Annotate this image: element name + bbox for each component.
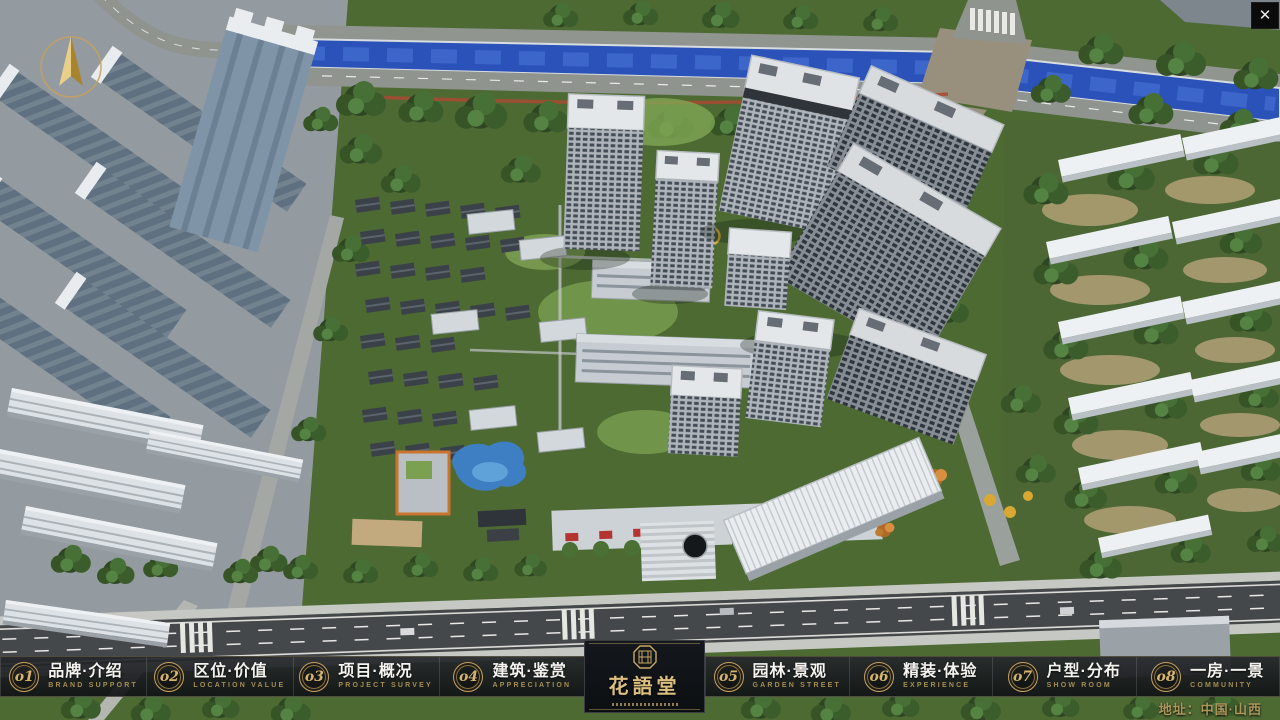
address-text: 地址：中国·山西	[1159, 699, 1262, 718]
menu-number-badge-3: o3	[299, 662, 329, 692]
menu-item-floorplan-distribution[interactable]: o7 户型·分布SHOW ROOM	[992, 657, 1136, 696]
menu-label: 品牌·介绍	[48, 664, 138, 681]
logo-panel[interactable]: 花語堂	[584, 640, 705, 713]
menu-number-badge-7: o7	[1008, 662, 1038, 692]
menu-sublabel: EXPERIENCE	[903, 682, 977, 689]
logo-title: 花語堂	[609, 670, 681, 699]
menu-label: 精装·体验	[903, 664, 977, 681]
tan-building	[352, 519, 423, 547]
menu-item-room-view[interactable]: o8 一房·一景COMMUNITY	[1136, 657, 1280, 696]
close-button[interactable]: ✕	[1251, 2, 1279, 29]
menu-item-project-overview[interactable]: o3 项目·概况PROJECT SURVEY	[293, 657, 439, 696]
menu-group-left: o1 品牌·介绍BRAND SUPPORT o2 区位·价值LOCATION V…	[0, 657, 585, 696]
menu-item-interior-experience[interactable]: o6 精装·体验EXPERIENCE	[849, 657, 993, 696]
entrance-plaza	[640, 521, 716, 582]
menu-number-badge-1: o1	[9, 662, 39, 692]
menu-number-badge-5: o5	[714, 662, 744, 692]
menu-sublabel: GARDEN STREET	[753, 682, 842, 689]
menu-group-right: o5 园林·景观GARDEN STREET o6 精装·体验EXPERIENCE…	[705, 657, 1280, 696]
menu-sublabel: APPRECIATION	[492, 682, 571, 689]
menu-label: 项目·概况	[338, 664, 432, 681]
menu-item-architecture[interactable]: o4 建筑·鉴赏APPRECIATION	[439, 657, 585, 696]
menu-sublabel: BRAND SUPPORT	[48, 682, 138, 689]
menu-sublabel: COMMUNITY	[1190, 682, 1264, 689]
menu-number-badge-8: o8	[1151, 662, 1181, 692]
menu-label: 区位·价值	[193, 664, 285, 681]
presentation-stage: ✕ o1 品牌·介绍BRAND SUPPORT o2 区位·价值LOCATION…	[0, 0, 1280, 720]
menu-label: 户型·分布	[1047, 664, 1121, 681]
menu-item-location-value[interactable]: o2 区位·价值LOCATION VALUE	[146, 657, 292, 696]
menu-number-badge-4: o4	[453, 662, 483, 692]
menu-number-badge-2: o2	[154, 662, 184, 692]
menu-sublabel: SHOW ROOM	[1047, 682, 1121, 689]
menu-label: 一房·一景	[1190, 664, 1264, 681]
menu-label: 园林·景观	[753, 664, 842, 681]
masterplan-render	[0, 0, 1280, 720]
menu-label: 建筑·鉴赏	[492, 664, 571, 681]
menu-sublabel: LOCATION VALUE	[193, 682, 285, 689]
seal-icon	[633, 645, 657, 669]
menu-item-brand-intro[interactable]: o1 品牌·介绍BRAND SUPPORT	[0, 657, 146, 696]
logo-subtitle-line	[612, 703, 678, 706]
menu-number-badge-6: o6	[864, 662, 894, 692]
menu-item-garden-landscape[interactable]: o5 园林·景观GARDEN STREET	[705, 657, 849, 696]
menu-sublabel: PROJECT SURVEY	[338, 682, 432, 689]
